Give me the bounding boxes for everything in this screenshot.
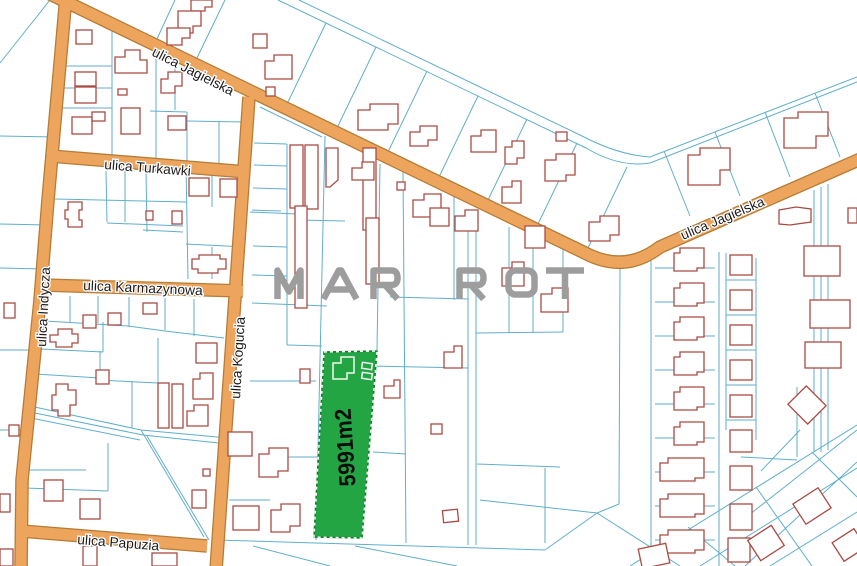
- svg-text:5991m2: 5991m2: [330, 408, 361, 488]
